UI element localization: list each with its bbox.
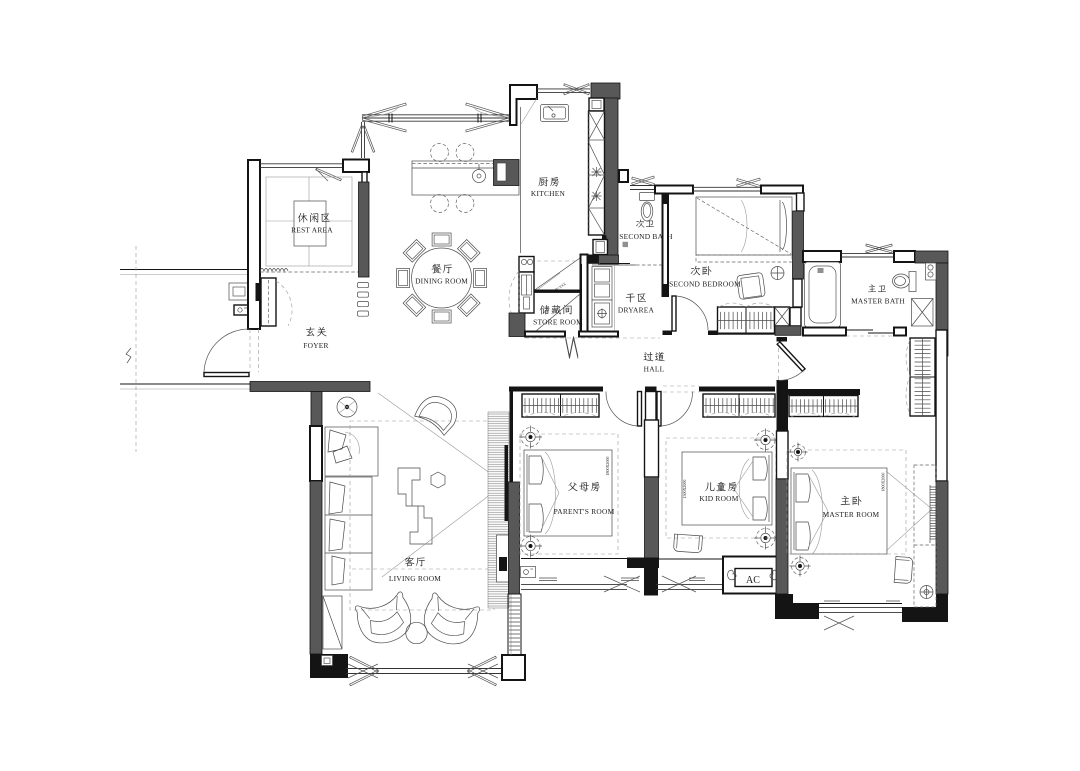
svg-text:AC: AC — [746, 575, 760, 586]
svg-text:REST AREA: REST AREA — [291, 226, 333, 235]
svg-text:SECOND BEDROOM: SECOND BEDROOM — [669, 280, 741, 289]
svg-text:LIVING ROOM: LIVING ROOM — [389, 574, 441, 583]
svg-text:1800X2000: 1800X2000 — [605, 457, 610, 476]
svg-text:PARENT'S ROOM: PARENT'S ROOM — [554, 507, 615, 516]
svg-text:DINING ROOM: DINING ROOM — [415, 277, 468, 286]
svg-text:STORE ROOM: STORE ROOM — [533, 318, 583, 327]
svg-text:KITCHEN: KITCHEN — [531, 189, 566, 198]
svg-text:MASTER ROOM: MASTER ROOM — [823, 510, 880, 519]
svg-text:MASTER BATH: MASTER BATH — [851, 297, 905, 306]
svg-text:DRYAREA: DRYAREA — [618, 306, 655, 315]
svg-text:1500X2000: 1500X2000 — [682, 480, 687, 499]
svg-text:FOYER: FOYER — [303, 341, 328, 350]
svg-text:KID ROOM: KID ROOM — [699, 494, 738, 503]
svg-text:HALL: HALL — [644, 365, 665, 374]
svg-text:1800X2000: 1800X2000 — [881, 473, 886, 492]
